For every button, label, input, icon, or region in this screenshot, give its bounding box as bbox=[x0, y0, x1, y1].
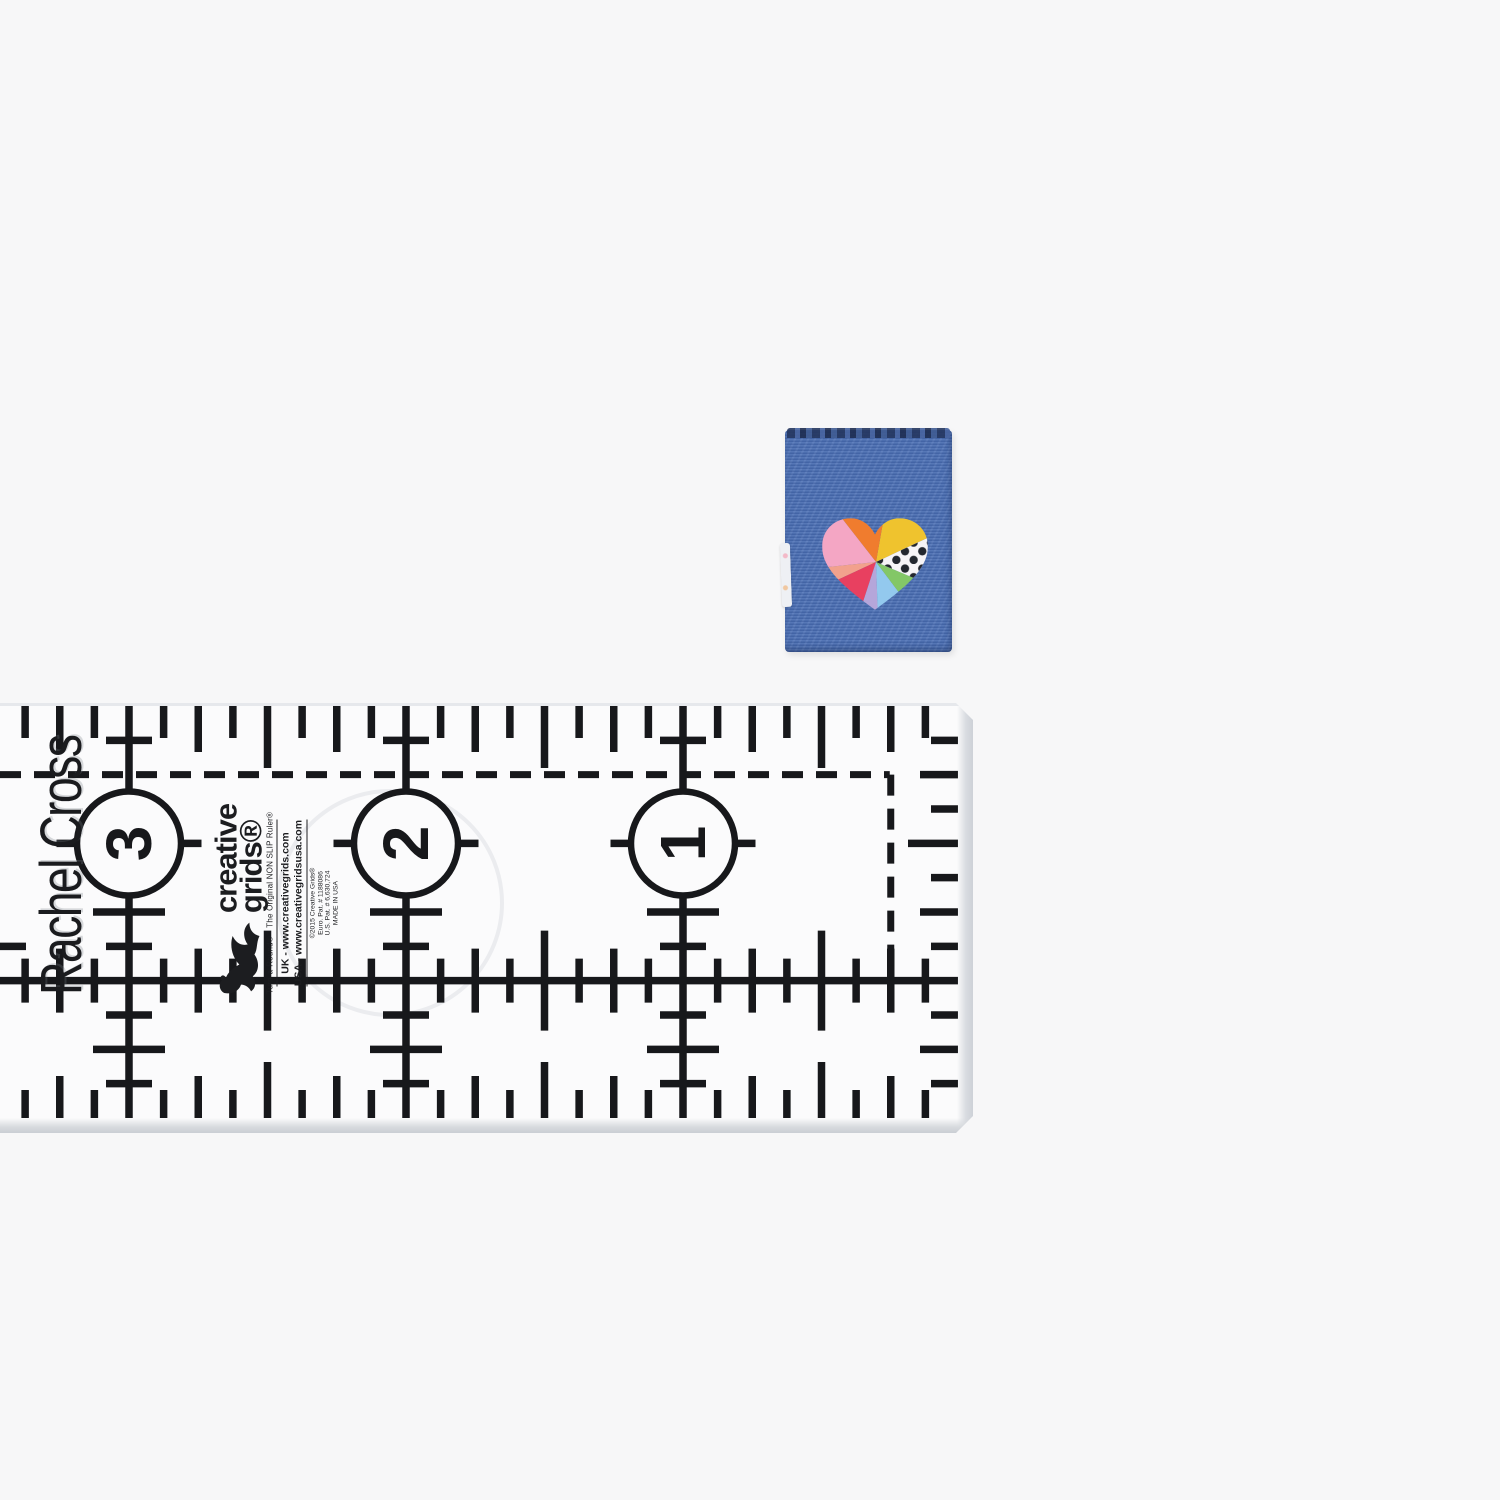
brand-made-in-usa: MADE IN USA bbox=[332, 868, 340, 938]
brand-tagline: The Original NON SLIP Ruler® bbox=[266, 812, 275, 928]
brand-turnaround: Turn-a-Round® bbox=[266, 936, 275, 994]
ruler-number-3: 3 bbox=[93, 826, 165, 862]
brand-uk-url: UK - www.creativegrids.com bbox=[280, 820, 293, 986]
ruler-number-2: 2 bbox=[370, 826, 442, 862]
squirrel-icon bbox=[213, 916, 265, 1002]
creative-grids-logo: creative grids® Turn-a-Round® The Origin… bbox=[213, 796, 345, 1011]
quilting-ruler: 3 2 1 Rachel Cross creative grids® Turn-… bbox=[0, 703, 973, 1133]
ruler-owner-name: Rachel Cross bbox=[39, 771, 85, 995]
brand-usa-url: USA - www.creativegridsusa.com bbox=[292, 820, 305, 986]
woven-clothing-label bbox=[785, 430, 952, 652]
brand-copyright: ©2015 Creative Grids® bbox=[310, 868, 318, 938]
brand-euro-patent: Euro. Pat. # 1188086 bbox=[317, 868, 325, 938]
ruler-number-1: 1 bbox=[647, 826, 719, 862]
brand-word-grids: grids® bbox=[239, 804, 264, 913]
label-folded-side-edge bbox=[780, 543, 792, 607]
product-photo: 3 2 1 Rachel Cross creative grids® Turn-… bbox=[0, 0, 1500, 1500]
ruler-markings: 3 2 1 bbox=[0, 703, 973, 1133]
label-frayed-top-edge bbox=[787, 428, 950, 438]
ruler-bottom-bevel-edge bbox=[0, 1118, 973, 1133]
ruler-right-bevel-edge bbox=[957, 703, 973, 1133]
brand-us-patent: U.S. Pat. # 6,630,724 bbox=[325, 868, 333, 938]
patchwork-heart bbox=[814, 512, 936, 616]
ruler-tick-marks bbox=[0, 706, 958, 1118]
